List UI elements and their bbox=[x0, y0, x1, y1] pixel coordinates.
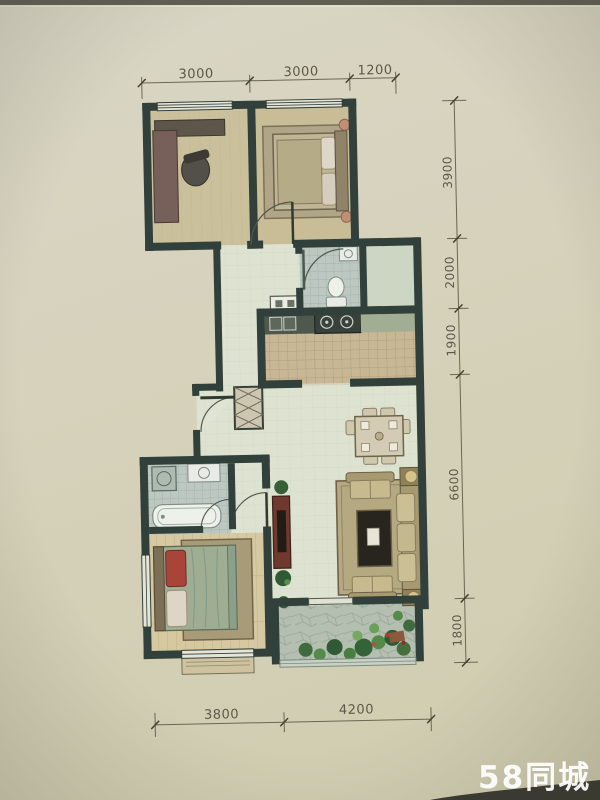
photo-vignette bbox=[0, 0, 600, 800]
floorplan-photo: 3000 3000 1200 3900 2000 1900 6600 1800 … bbox=[0, 0, 600, 800]
floorplan-canvas: 3000 3000 1200 3900 2000 1900 6600 1800 … bbox=[0, 0, 600, 800]
watermark-58tongcheng: 58同城 bbox=[478, 760, 591, 796]
